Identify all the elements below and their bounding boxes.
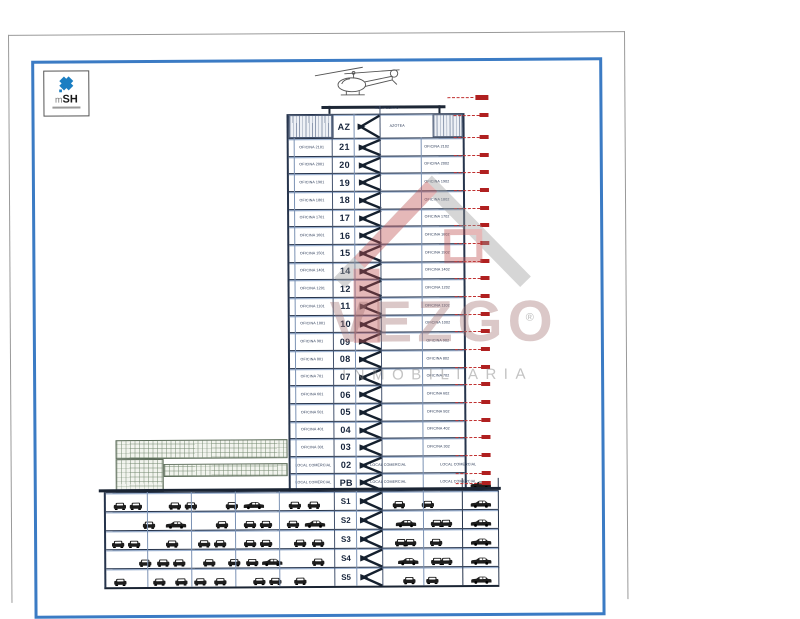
level-marker xyxy=(455,312,495,318)
unit-label: OFICINA 2102 xyxy=(424,145,449,149)
floor-number: 05 xyxy=(335,404,357,421)
podium-left-block xyxy=(116,459,164,492)
car-front-icon xyxy=(138,559,152,567)
stair-zigzag xyxy=(357,530,383,549)
car-side-icon xyxy=(470,557,492,565)
stair-zigzag xyxy=(357,549,383,568)
unit-label: OFICINA 502 xyxy=(427,410,450,414)
unit-label: OFICINA 1002 xyxy=(425,321,450,325)
car-front-icon xyxy=(402,576,416,584)
stair-zigzag xyxy=(356,280,382,298)
level-marker xyxy=(454,170,494,176)
stair-zigzag xyxy=(356,192,382,210)
car-front-icon xyxy=(111,540,125,548)
car-front-icon xyxy=(439,519,453,527)
ramp-bay xyxy=(462,567,499,585)
stair-zigzag xyxy=(356,421,382,439)
car-front-icon xyxy=(243,539,257,547)
basement-parking-section: S1 S2 S3 S4 S5 xyxy=(104,490,500,589)
stair-zigzag xyxy=(356,315,382,333)
ramp-bay xyxy=(462,491,499,509)
car-front-icon xyxy=(142,521,156,529)
unit-label: LOCAL COMERCIAL xyxy=(295,481,331,485)
logo-microtext xyxy=(52,106,80,108)
car-front-icon xyxy=(193,578,207,586)
elevation-markers xyxy=(1,0,800,3)
floor-row-19: OFICINA 1901 19 OFICINA 1902 xyxy=(289,172,463,191)
level-marker xyxy=(455,294,495,300)
heliport-label: HELIPUERTO xyxy=(356,96,416,114)
car-front-icon xyxy=(311,558,325,566)
stair-zigzag xyxy=(357,511,383,530)
car-front-icon xyxy=(391,500,405,508)
car-front-icon xyxy=(174,578,188,586)
level-marker xyxy=(456,481,496,487)
car-front-icon xyxy=(215,521,229,529)
logo-name: SH xyxy=(62,93,77,105)
car-front-icon xyxy=(243,520,257,528)
level-marker xyxy=(455,435,495,441)
floor-number: 16 xyxy=(334,227,356,244)
floor-row-18: OFICINA 1801 18 OFICINA 1802 xyxy=(289,190,463,209)
stair-zigzag xyxy=(356,298,382,316)
car-front-icon xyxy=(129,502,143,510)
unit-label: OFICINA 1502 xyxy=(425,251,450,255)
unit-label: OFICINA 1401 xyxy=(299,269,324,273)
unit-label: OFICINA 2001 xyxy=(299,163,324,167)
level-marker xyxy=(454,276,494,282)
ramp-bay xyxy=(462,510,499,528)
unit-label: OFICINA 902 xyxy=(426,339,449,343)
level-marker xyxy=(455,347,495,353)
unit-label: OFICINA 402 xyxy=(427,427,450,431)
car-side-icon xyxy=(470,538,492,546)
floor-number: S2 xyxy=(335,511,357,529)
msh-cross-icon xyxy=(55,74,77,94)
stair-zigzag xyxy=(356,245,382,263)
podium-mid-band xyxy=(164,463,288,477)
unit-label: OFICINA 401 xyxy=(301,428,324,432)
unit-label: LOCAL COMERCIAL xyxy=(370,463,406,467)
unit-label: OFICINA 1602 xyxy=(425,233,450,237)
tower-section: AZ AZOTEA OFICINA 2101 21 OFICINA 2102 O… xyxy=(286,113,466,491)
unit-label: OFICINA 1501 xyxy=(299,251,324,255)
car-front-icon xyxy=(259,539,273,547)
parking-bay-left xyxy=(106,568,335,587)
floor-row-11: OFICINA 1101 11 OFICINA 1102 xyxy=(290,296,464,315)
floor-row-10: OFICINA 1001 10 OFICINA 1002 xyxy=(290,314,464,333)
floor-row-12: OFICINA 1201 12 OFICINA 1202 xyxy=(290,278,464,297)
level-marker xyxy=(453,95,493,101)
msh-logo-text: mSH xyxy=(55,94,78,104)
unit-label: OFICINA 802 xyxy=(426,357,449,361)
floor-row-07: OFICINA 701 07 OFICINA 702 xyxy=(290,367,464,386)
parking-bay-left xyxy=(106,549,335,568)
basement-row-S5: S5 xyxy=(106,566,499,587)
level-marker xyxy=(455,329,495,335)
floor-number: 14 xyxy=(334,262,356,279)
stair-zigzag xyxy=(355,115,381,139)
level-marker xyxy=(454,206,494,212)
floor-number: 06 xyxy=(335,386,357,403)
floor-number: 20 xyxy=(334,156,356,173)
car-front-icon xyxy=(252,577,266,585)
unit-label: OFICINA 1202 xyxy=(425,286,450,290)
floor-row-08: OFICINA 801 08 OFICINA 802 xyxy=(290,349,464,368)
floor-number: 11 xyxy=(335,298,357,315)
floor-row-09: OFICINA 901 09 OFICINA 902 xyxy=(290,331,464,350)
stair-zigzag xyxy=(356,227,382,245)
level-marker xyxy=(454,188,494,194)
basement-row-S4: S4 xyxy=(106,547,499,568)
floor-row-14: OFICINA 1401 14 OFICINA 1402 xyxy=(289,261,463,280)
floor-number: S5 xyxy=(335,568,357,586)
car-front-icon xyxy=(197,540,211,548)
unit-label: OFICINA 302 xyxy=(427,445,450,449)
level-marker xyxy=(454,153,494,159)
floor-number: AZ xyxy=(333,115,355,138)
floor-number: 08 xyxy=(334,351,356,368)
car-front-icon xyxy=(425,576,439,584)
unit-label: OFICINA 501 xyxy=(301,410,324,414)
floor-number: S3 xyxy=(335,530,357,548)
unit-label: OFICINA 601 xyxy=(301,393,324,397)
level-marker xyxy=(454,241,494,247)
floor-row-15: OFICINA 1501 15 OFICINA 1502 xyxy=(289,243,463,262)
level-marker xyxy=(455,365,495,371)
car-side-icon xyxy=(395,519,417,527)
car-front-icon xyxy=(245,558,259,566)
car-front-icon xyxy=(213,540,227,548)
stair-zigzag xyxy=(356,386,382,404)
car-front-icon xyxy=(152,578,166,586)
floor-number: 07 xyxy=(334,368,356,385)
unit-label: OFICINA 1102 xyxy=(425,304,450,308)
stair-zigzag xyxy=(356,262,382,280)
car-side-icon xyxy=(165,521,187,529)
level-marker xyxy=(453,113,493,119)
basement-row-S3: S3 xyxy=(106,528,499,549)
car-side-icon xyxy=(470,576,492,584)
helipad-post xyxy=(328,106,330,114)
azotea-label: AZOTEA xyxy=(390,124,405,128)
scanned-page: mSH HEL xyxy=(8,31,628,603)
level-marker xyxy=(455,418,495,424)
car-front-icon xyxy=(293,577,307,585)
podium-upper-band xyxy=(115,439,287,459)
car-side-icon xyxy=(243,501,265,509)
unit-label: OFICINA 801 xyxy=(301,357,324,361)
stair-zigzag xyxy=(356,350,382,368)
stair-zigzag xyxy=(356,403,382,421)
floor-number: S1 xyxy=(335,492,357,510)
unit-label: OFICINA 2002 xyxy=(424,162,449,166)
ramp-bay xyxy=(462,529,499,547)
car-front-icon xyxy=(113,502,127,510)
floor-row-20: OFICINA 2001 20 OFICINA 2002 xyxy=(289,155,463,174)
level-marker xyxy=(455,400,495,406)
unit-label: OFICINA 1702 xyxy=(425,215,450,219)
floor-number: 18 xyxy=(334,192,356,209)
floor-row-04: OFICINA 401 04 OFICINA 402 xyxy=(290,420,464,439)
floor-row-02: LOCAL COMERCIAL 02 LOCAL COMERCIAL LOCAL… xyxy=(291,455,465,474)
car-front-icon xyxy=(259,520,273,528)
floor-number: S4 xyxy=(335,549,357,567)
car-front-icon xyxy=(127,540,141,548)
car-front-icon xyxy=(202,559,216,567)
unit-label: OFICINA 602 xyxy=(427,392,450,396)
level-marker xyxy=(456,470,496,476)
unit-label: OFICINA 1902 xyxy=(424,180,449,184)
unit-label: OFICINA 1101 xyxy=(300,304,325,308)
floor-number: 17 xyxy=(334,209,356,226)
floor-number: 12 xyxy=(335,280,357,297)
car-front-icon xyxy=(429,538,443,546)
floor-number: 09 xyxy=(334,333,356,350)
level-marker xyxy=(454,223,494,229)
watermark-registered: ® xyxy=(526,312,534,324)
car-front-icon xyxy=(213,578,227,586)
parking-bay-left xyxy=(106,530,335,549)
unit-label: LOCAL COMERCIAL xyxy=(440,462,476,466)
car-front-icon xyxy=(225,501,239,509)
stair-zigzag xyxy=(355,139,381,157)
floor-number: 21 xyxy=(334,139,356,156)
floor-number: 04 xyxy=(335,421,357,438)
basement-row-S1: S1 xyxy=(106,490,499,511)
helipad-post xyxy=(438,105,440,113)
car-front-icon xyxy=(113,578,127,586)
building-elevation-drawing: mSH HEL xyxy=(1,0,800,603)
unit-label: LOCAL COMERCIAL xyxy=(295,463,331,467)
unit-label: OFICINA 1201 xyxy=(300,287,325,291)
unit-label: OFICINA 2101 xyxy=(299,145,324,149)
car-front-icon xyxy=(293,539,307,547)
floor-number: 03 xyxy=(335,439,357,456)
floor-row-17: OFICINA 1701 17 OFICINA 1702 xyxy=(289,208,463,227)
stair-zigzag xyxy=(355,174,381,192)
level-marker xyxy=(455,382,495,388)
car-front-icon xyxy=(286,520,300,528)
car-side-icon xyxy=(397,557,419,565)
stair-zigzag xyxy=(357,439,383,457)
stair-zigzag xyxy=(357,568,383,587)
stair-zigzag xyxy=(357,492,383,511)
level-marker xyxy=(454,135,494,141)
unit-label: OFICINA 1801 xyxy=(299,198,324,202)
floor-row-21: OFICINA 2101 21 OFICINA 2102 xyxy=(289,137,463,156)
unit-label: OFICINA 1601 xyxy=(299,234,324,238)
unit-label: OFICINA 901 xyxy=(301,340,324,344)
unit-label: OFICINA 1901 xyxy=(299,181,324,185)
unit-label: OFICINA 1402 xyxy=(425,268,450,272)
floor-row-05: OFICINA 501 05 OFICINA 502 xyxy=(290,402,464,421)
car-front-icon xyxy=(165,540,179,548)
stair-zigzag xyxy=(356,333,382,351)
car-front-icon xyxy=(172,559,186,567)
unit-label: OFICINA 702 xyxy=(427,374,450,378)
car-side-icon xyxy=(469,500,491,508)
car-front-icon xyxy=(439,557,453,565)
floor-number: 02 xyxy=(336,457,357,474)
roof-parapet-left xyxy=(289,115,334,138)
floor-row-az: AZ AZOTEA xyxy=(288,113,462,138)
stair-zigzag xyxy=(356,368,382,386)
car-side-icon xyxy=(304,520,326,528)
floor-number: 19 xyxy=(334,174,356,191)
stair-zigzag xyxy=(355,156,381,174)
level-marker xyxy=(454,259,494,265)
unit-label: OFICINA 1701 xyxy=(299,216,324,220)
unit-label: OFICINA 701 xyxy=(301,375,324,379)
parking-bay-left xyxy=(106,511,335,530)
basement-row-S2: S2 xyxy=(106,509,499,530)
car-front-icon xyxy=(311,539,325,547)
car-front-icon xyxy=(307,501,321,509)
unit-label: OFICINA 301 xyxy=(301,446,324,450)
msh-logo: mSH xyxy=(43,70,89,116)
unit-label: OFICINA 1802 xyxy=(425,198,450,202)
floor-number: 15 xyxy=(334,245,356,262)
car-side-icon xyxy=(470,519,492,527)
car-front-icon xyxy=(156,559,170,567)
floor-row-03: OFICINA 301 03 OFICINA 302 xyxy=(290,437,464,456)
parking-bay-left xyxy=(106,492,335,511)
unit-label: OFICINA 1001 xyxy=(300,322,325,326)
unit-label: LOCAL COMERCIAL xyxy=(371,480,407,484)
floor-row-16: OFICINA 1601 16 OFICINA 1602 xyxy=(289,225,463,244)
floor-row-06: OFICINA 601 06 OFICINA 602 xyxy=(290,384,464,403)
stair-zigzag xyxy=(356,209,382,227)
ramp-bay xyxy=(462,548,499,566)
car-front-icon xyxy=(288,501,302,509)
floor-number: 10 xyxy=(335,315,357,332)
car-front-icon xyxy=(403,538,417,546)
level-marker xyxy=(456,453,496,459)
car-front-icon xyxy=(168,502,182,510)
